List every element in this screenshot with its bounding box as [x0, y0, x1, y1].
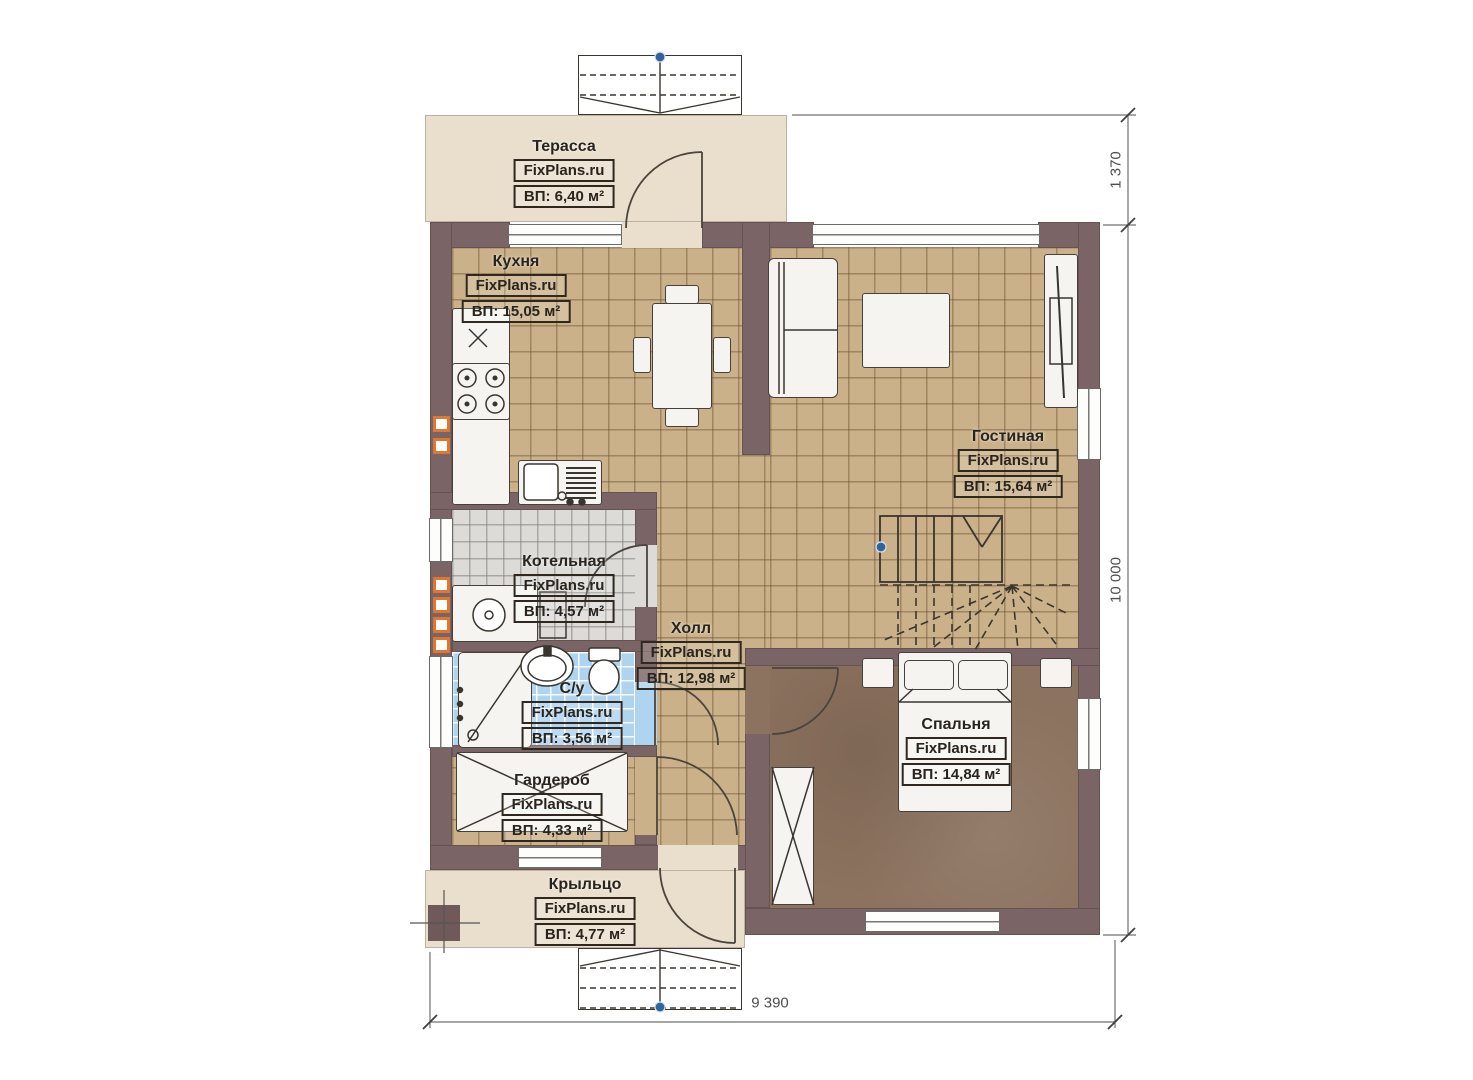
bedroom-closet-x	[772, 767, 814, 905]
window	[865, 911, 1000, 932]
area-box: ВП: 14,84 м²	[902, 763, 1011, 786]
room-name: Гостиная	[972, 428, 1044, 446]
brand-box: FixPlans.ru	[466, 274, 567, 297]
vent-flue	[433, 577, 450, 593]
chair	[713, 337, 731, 373]
room-label-wardrobe: Гардероб FixPlans.ru ВП: 4,33 м²	[502, 772, 603, 842]
door-opening	[635, 545, 657, 607]
area-box: ВП: 15,64 м²	[954, 475, 1063, 498]
door-opening	[745, 666, 770, 734]
chair	[633, 337, 651, 373]
nightstand	[862, 658, 894, 688]
area-box: ВП: 15,05 м²	[462, 300, 571, 323]
room-label-hall: Холл FixPlans.ru ВП: 12,98 м²	[637, 620, 746, 690]
wall-segment	[768, 222, 814, 248]
room-label-boiler: Котельная FixPlans.ru ВП: 4,57 м²	[514, 553, 615, 623]
room-label-terrace: Терасса FixPlans.ru ВП: 6,40 м²	[514, 138, 615, 208]
window	[1077, 388, 1101, 460]
brand-box: FixPlans.ru	[958, 449, 1059, 472]
porch-steps	[578, 948, 742, 1010]
room-label-living: Гостиная FixPlans.ru ВП: 15,64 м²	[954, 428, 1063, 498]
room-name: Спальня	[921, 716, 990, 734]
vent-flue	[433, 416, 450, 432]
room-name: Холл	[671, 620, 711, 638]
dining-table	[652, 303, 712, 409]
room-label-kitchen: Кухня FixPlans.ru ВП: 15,05 м²	[462, 253, 571, 323]
vent-flue	[433, 617, 450, 633]
room-name: Крыльцо	[549, 876, 622, 894]
floor-plan: Терасса FixPlans.ru ВП: 6,40 м² Кухня Fi…	[0, 0, 1473, 1080]
chair	[665, 408, 699, 427]
room-name: Кухня	[493, 253, 540, 271]
wall-segment	[742, 222, 770, 455]
vent-flue	[433, 438, 450, 454]
room-label-bedroom: Спальня FixPlans.ru ВП: 14,84 м²	[902, 716, 1011, 786]
door-opening	[658, 845, 738, 870]
brand-box: FixPlans.ru	[906, 737, 1007, 760]
pillow	[958, 660, 1008, 690]
room-name: С/у	[560, 680, 585, 698]
window	[429, 518, 453, 562]
room-name: Котельная	[522, 553, 606, 571]
brand-box: FixPlans.ru	[502, 793, 603, 816]
terrace-steps	[578, 55, 742, 115]
room-label-bathroom: С/у FixPlans.ru ВП: 3,56 м²	[522, 680, 623, 750]
vent-flue	[433, 597, 450, 613]
window	[1077, 698, 1101, 770]
chair	[665, 285, 699, 304]
porch-pillar	[428, 905, 460, 941]
brand-box: FixPlans.ru	[514, 574, 615, 597]
area-box: ВП: 4,77 м²	[535, 923, 635, 946]
nightstand	[1040, 658, 1072, 688]
brand-box: FixPlans.ru	[522, 701, 623, 724]
window	[508, 224, 622, 245]
pillow	[904, 660, 954, 690]
window	[518, 847, 602, 868]
wall-segment	[1078, 222, 1100, 935]
dim-house-height: 10 000	[1108, 557, 1125, 603]
stove	[452, 363, 510, 420]
area-box: ВП: 12,98 м²	[637, 667, 746, 690]
room-label-porch: Крыльцо FixPlans.ru ВП: 4,77 м²	[535, 876, 636, 946]
room-name: Терасса	[532, 138, 595, 156]
door-opening	[635, 682, 657, 745]
dim-house-width: 9 390	[751, 995, 789, 1012]
area-box: ВП: 4,33 м²	[502, 819, 602, 842]
brand-box: FixPlans.ru	[514, 159, 615, 182]
coffee-table	[862, 293, 950, 368]
area-box: ВП: 3,56 м²	[522, 727, 622, 750]
door-opening	[635, 757, 657, 835]
sofa	[768, 258, 838, 398]
dim-terrace-depth: 1 370	[1108, 151, 1125, 189]
door-opening	[622, 222, 702, 248]
brand-box: FixPlans.ru	[535, 897, 636, 920]
window	[812, 224, 1040, 245]
window	[429, 656, 453, 748]
area-box: ВП: 6,40 м²	[514, 185, 614, 208]
vent-flue	[433, 637, 450, 653]
room-name: Гардероб	[514, 772, 590, 790]
kitchen-sink-unit	[518, 460, 602, 505]
area-box: ВП: 4,57 м²	[514, 600, 614, 623]
tv-unit	[1044, 254, 1078, 408]
brand-box: FixPlans.ru	[641, 641, 742, 664]
